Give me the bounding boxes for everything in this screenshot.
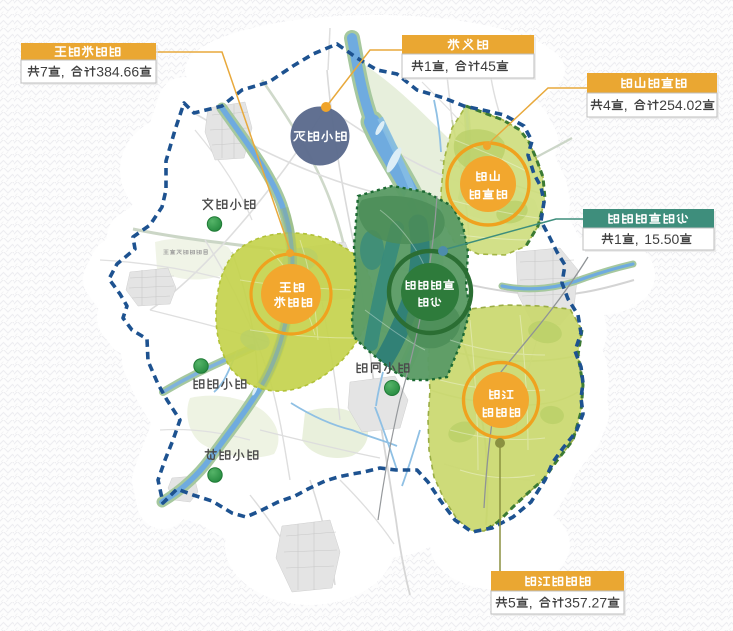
- svg-text:,: ,: [445, 58, 449, 74]
- svg-text:4: 4: [603, 97, 611, 113]
- svg-text:384.66: 384.66: [96, 64, 139, 80]
- svg-text:1: 1: [614, 231, 622, 247]
- svg-text:,: ,: [635, 231, 639, 247]
- svg-text:1: 1: [424, 58, 432, 74]
- svg-text:45: 45: [480, 58, 496, 74]
- svg-text:,: ,: [624, 97, 628, 113]
- svg-text:,: ,: [61, 64, 65, 80]
- svg-text:15.50: 15.50: [644, 231, 679, 247]
- svg-text:7: 7: [40, 64, 48, 80]
- svg-text:5: 5: [508, 595, 516, 611]
- svg-text:357.27: 357.27: [564, 595, 607, 611]
- svg-text:,: ,: [529, 595, 533, 611]
- svg-text:254.02: 254.02: [659, 97, 702, 113]
